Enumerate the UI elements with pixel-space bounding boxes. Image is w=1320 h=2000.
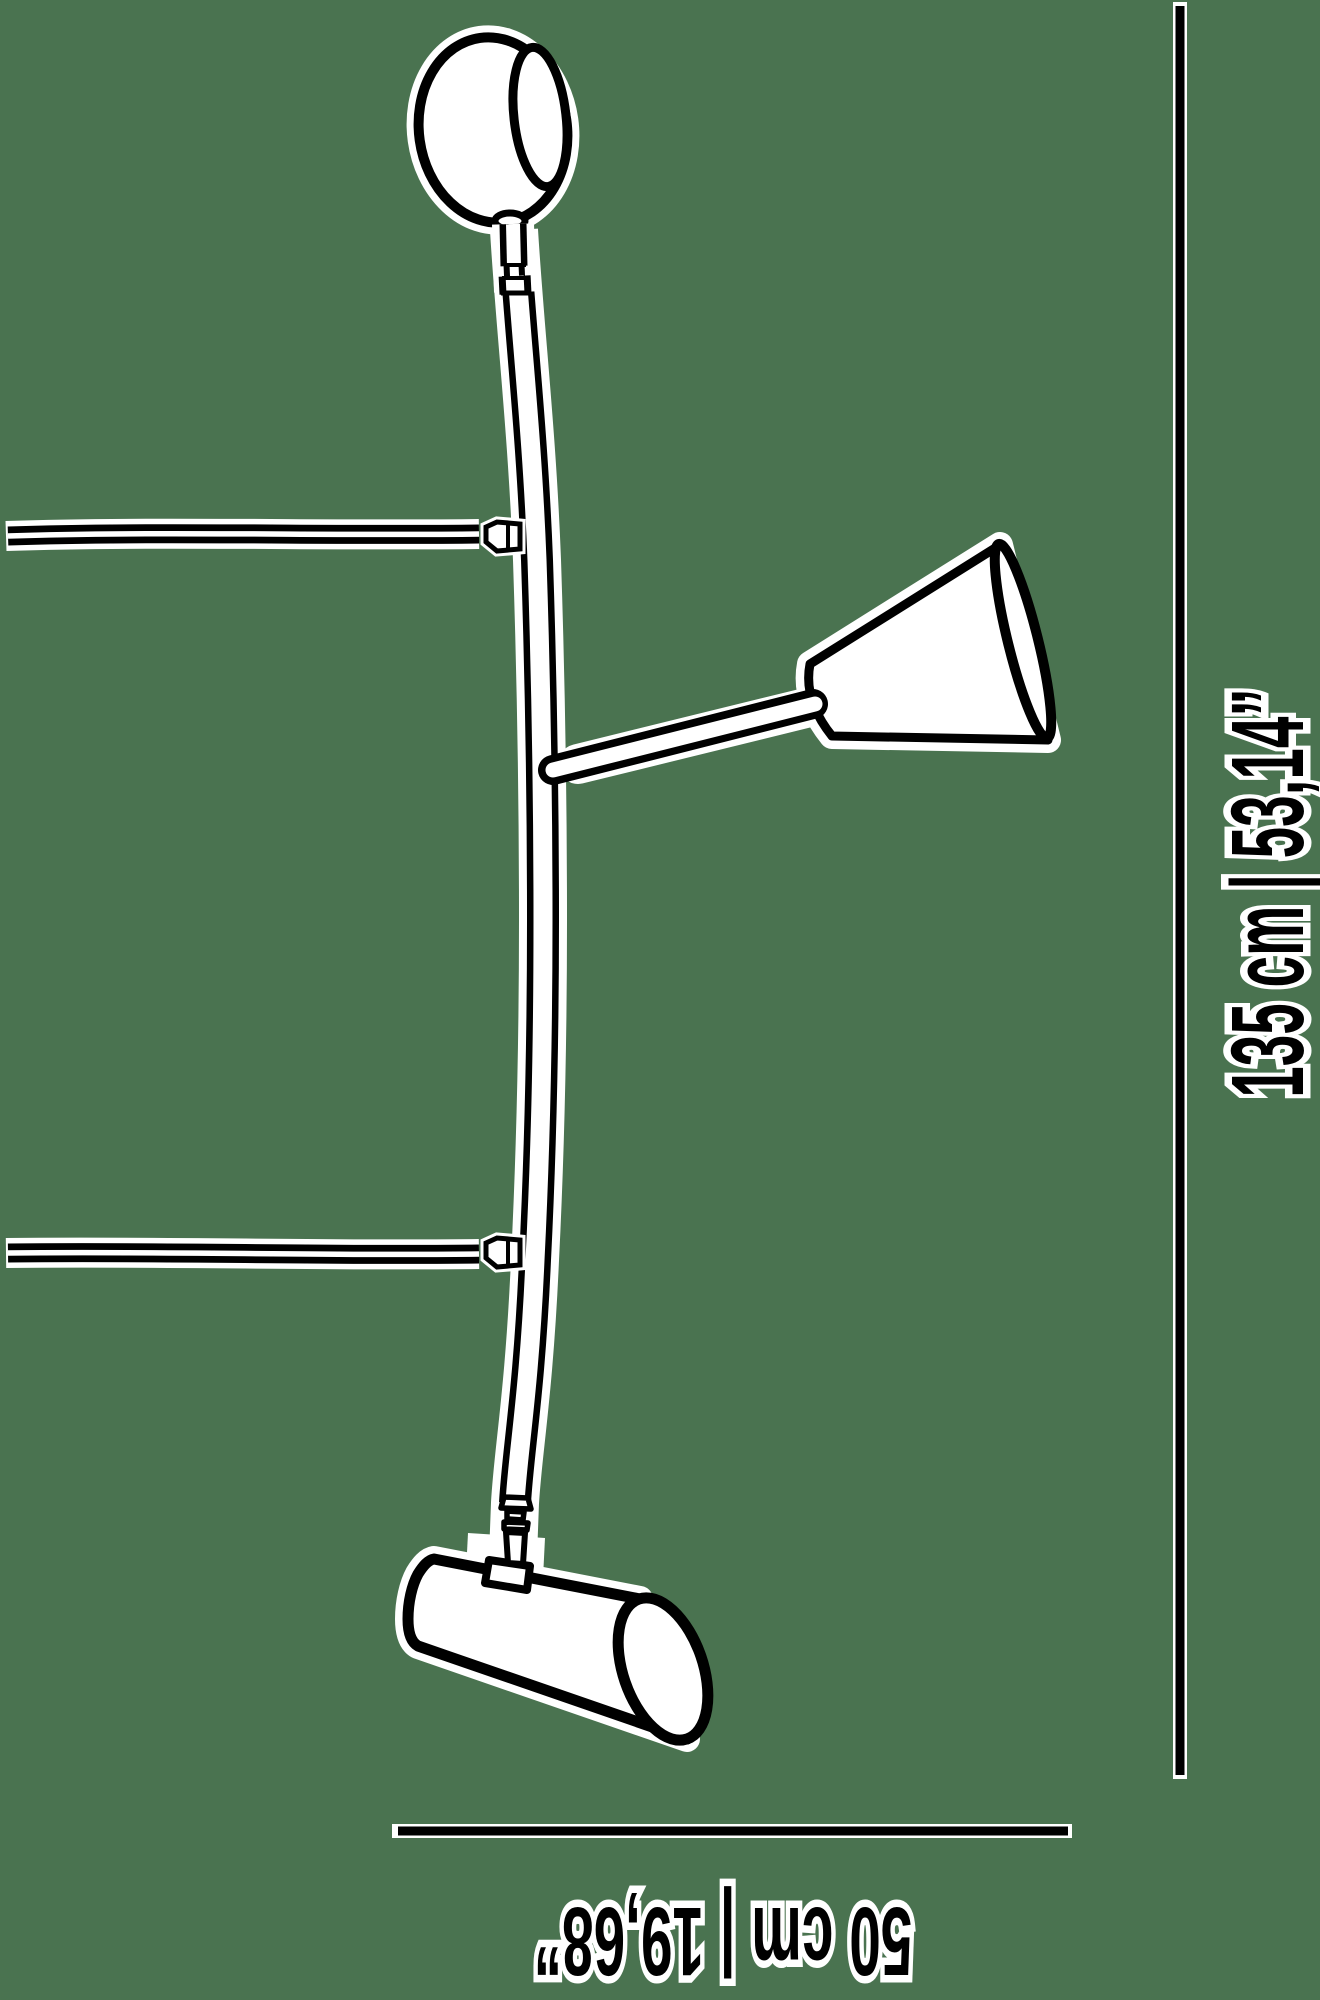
svg-text:135 cm | 53,14”: 135 cm | 53,14” <box>1210 688 1320 1097</box>
svg-text:50 cm | 19,68”: 50 cm | 19,68” <box>534 1886 913 1996</box>
